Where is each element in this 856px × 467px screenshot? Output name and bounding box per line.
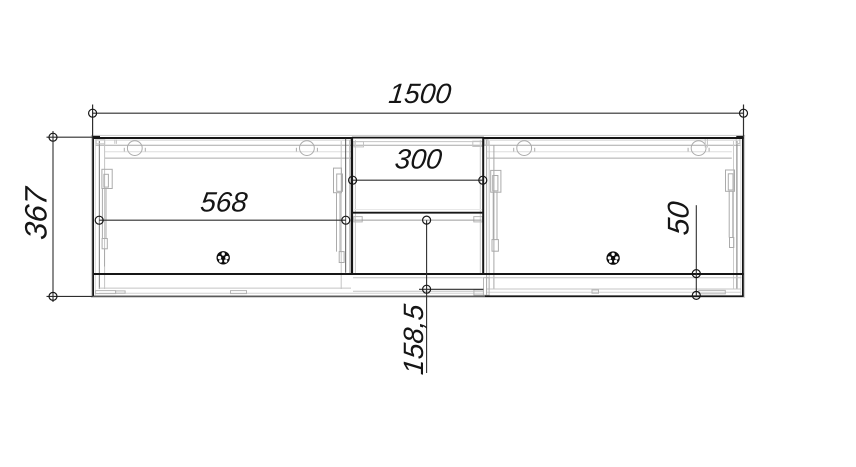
svg-text:1500: 1500 <box>387 78 453 109</box>
svg-text:568: 568 <box>199 187 249 218</box>
svg-text:367: 367 <box>18 184 53 241</box>
svg-text:158,5: 158,5 <box>398 302 429 376</box>
svg-text:300: 300 <box>394 144 444 175</box>
svg-text:50: 50 <box>663 200 696 237</box>
